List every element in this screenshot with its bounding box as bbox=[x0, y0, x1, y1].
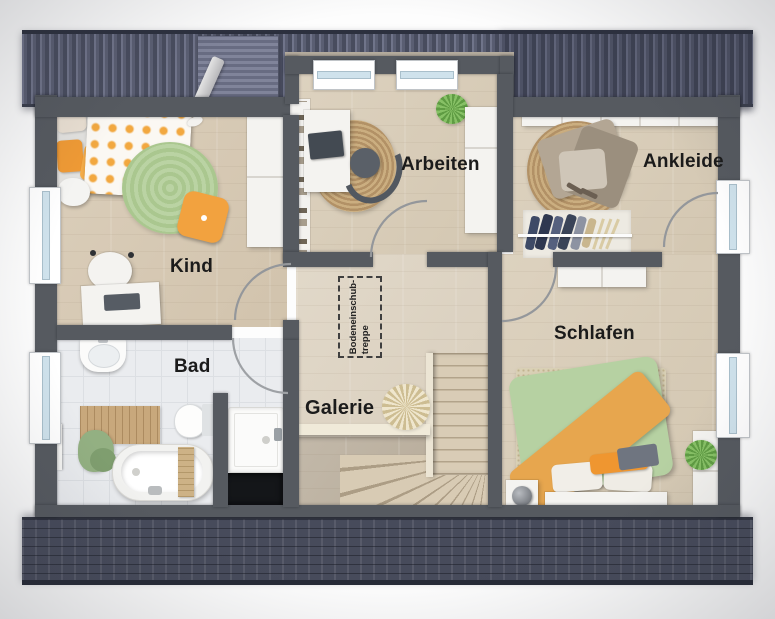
room-label-galerie: Galerie bbox=[305, 397, 374, 420]
door-arc-ankleide bbox=[664, 193, 718, 247]
door-arc-arbeiten bbox=[371, 201, 427, 257]
door-arc-bad bbox=[233, 338, 288, 393]
floorplan-stage: Bodeneinschub- treppe bbox=[0, 0, 775, 619]
room-label-arbeiten: Arbeiten bbox=[401, 154, 480, 176]
room-label-ankleide: Ankleide bbox=[643, 151, 724, 173]
door-arc-schlafen bbox=[502, 267, 556, 321]
room-label-bad: Bad bbox=[174, 356, 211, 378]
room-label-kind: Kind bbox=[170, 256, 213, 278]
door-swing-arcs bbox=[0, 0, 775, 619]
door-arc-kind bbox=[235, 264, 291, 320]
room-label-schlafen: Schlafen bbox=[554, 323, 635, 345]
